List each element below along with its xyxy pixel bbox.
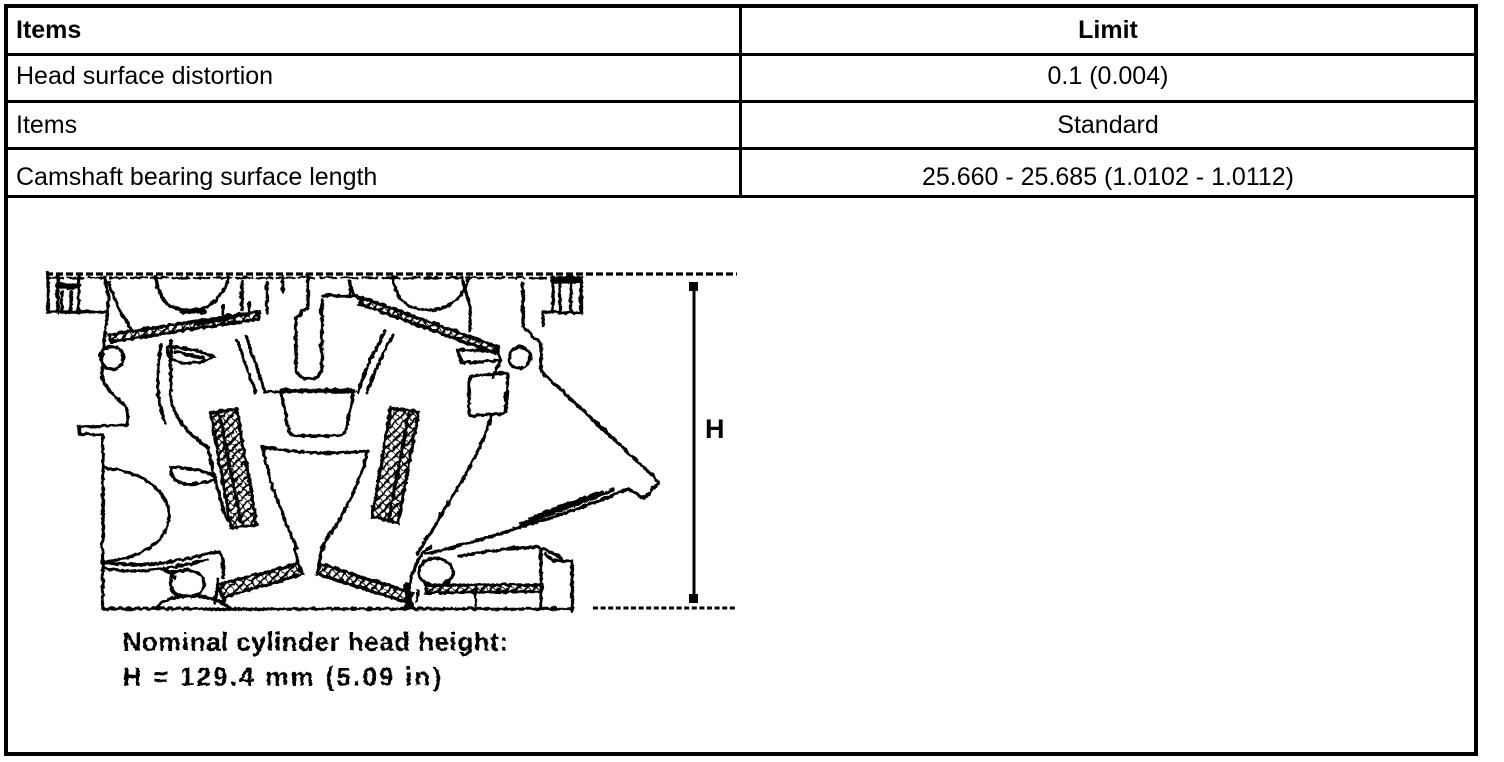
svg-text:H: H <box>705 414 725 444</box>
